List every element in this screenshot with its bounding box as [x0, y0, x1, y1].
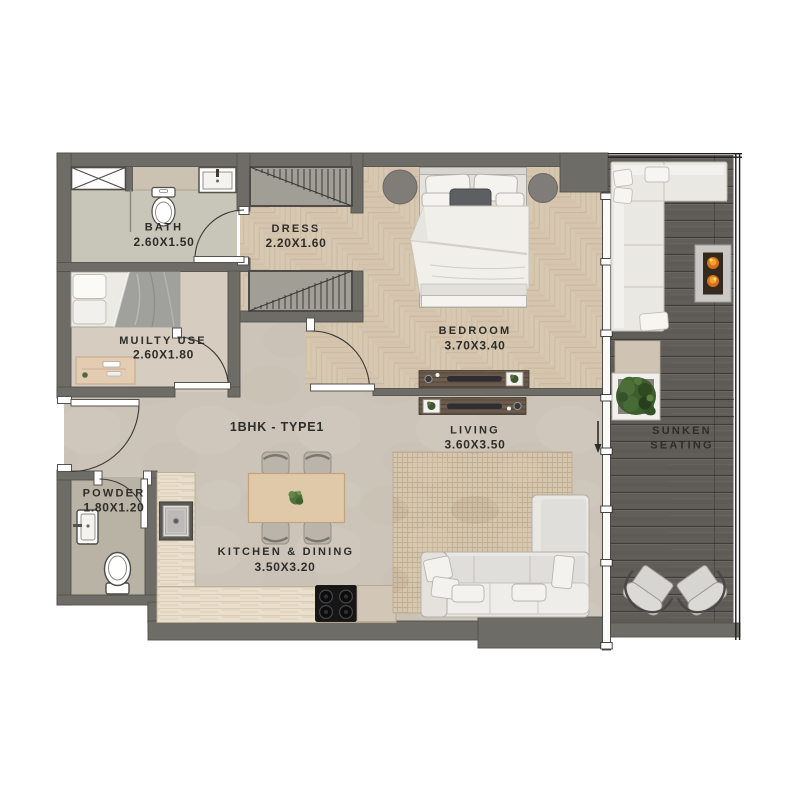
svg-text:DRESS: DRESS	[272, 223, 321, 235]
svg-text:2.60X1.80: 2.60X1.80	[133, 348, 194, 362]
svg-text:2.20X1.60: 2.20X1.60	[265, 236, 326, 250]
svg-text:SEATING: SEATING	[650, 440, 713, 452]
svg-text:POWDER: POWDER	[83, 488, 146, 500]
svg-text:BATH: BATH	[145, 222, 184, 234]
svg-text:SUNKEN: SUNKEN	[652, 425, 712, 437]
svg-text:KITCHEN & DINING: KITCHEN & DINING	[218, 546, 355, 558]
svg-text:3.70X3.40: 3.70X3.40	[444, 339, 505, 353]
svg-text:1.80X1.20: 1.80X1.20	[83, 501, 144, 515]
svg-text:BEDROOM: BEDROOM	[439, 325, 512, 337]
svg-text:MUILTY USE: MUILTY USE	[119, 335, 207, 347]
svg-text:3.50X3.20: 3.50X3.20	[254, 560, 315, 574]
svg-text:2.60X1.50: 2.60X1.50	[133, 235, 194, 249]
svg-text:3.60X3.50: 3.60X3.50	[444, 438, 505, 452]
svg-text:1BHK - TYPE1: 1BHK - TYPE1	[230, 420, 324, 434]
svg-text:LIVING: LIVING	[450, 425, 500, 437]
